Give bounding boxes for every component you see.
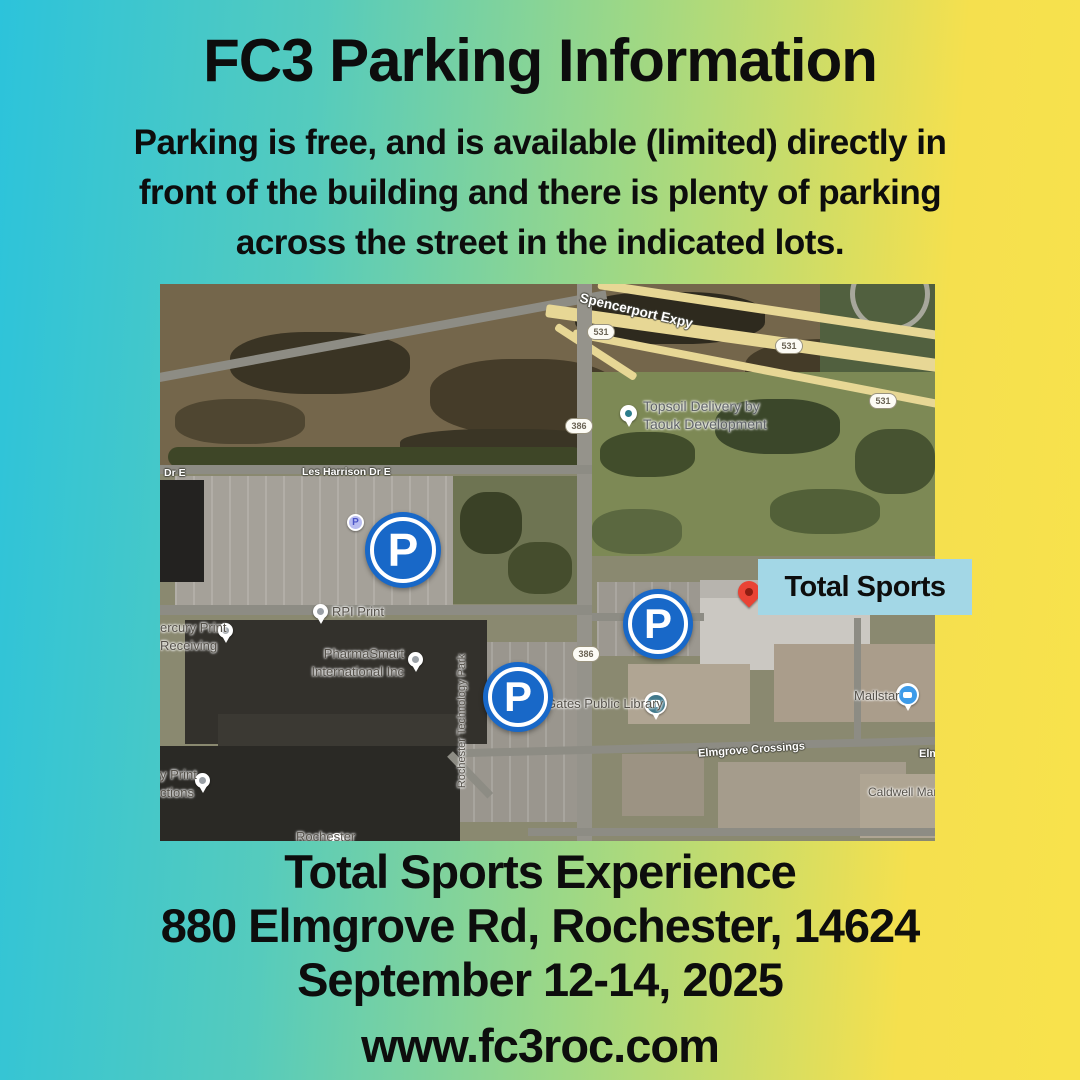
poi-label-receiving: Receiving bbox=[160, 638, 214, 653]
poi-label-topsoil-2: Taouk Development bbox=[643, 416, 767, 432]
poi-label-print-1: y Print bbox=[160, 767, 197, 782]
building-dark bbox=[160, 480, 204, 582]
street-label-rochester-technology-park: Rochester Technology Park bbox=[456, 646, 468, 796]
description-line-3: across the street in the indicated lots. bbox=[0, 218, 1080, 268]
parking-marker-northwest: P bbox=[365, 512, 441, 588]
road-bottom bbox=[528, 828, 935, 836]
poi-pin-print-solutions bbox=[195, 773, 210, 788]
route-shield-386: 386 bbox=[565, 418, 593, 434]
description-line-2: front of the building and there is plent… bbox=[0, 168, 1080, 218]
poi-label-topsoil-1: Topsoil Delivery by bbox=[643, 398, 760, 414]
tree-cluster bbox=[770, 489, 880, 534]
tree-cluster bbox=[600, 432, 695, 477]
page-title: FC3 Parking Information bbox=[0, 26, 1080, 95]
route-shield-531: 531 bbox=[775, 338, 803, 354]
tree-cluster bbox=[508, 542, 572, 594]
parking-marker-east: P bbox=[623, 589, 693, 659]
poi-label-caldwell: Caldwell Man bbox=[868, 785, 935, 799]
tree-cluster bbox=[855, 429, 935, 494]
venue-label-text: Total Sports bbox=[784, 571, 945, 604]
poi-label-mercury-print: ercury Print bbox=[160, 620, 214, 635]
route-shield-531: 531 bbox=[869, 393, 897, 409]
poi-label-pharmasmart-1: PharmaSmart bbox=[316, 646, 404, 661]
poi-pin-topsoil bbox=[620, 405, 637, 422]
poi-pin-pharmasmart bbox=[408, 652, 423, 667]
building-dark bbox=[218, 714, 463, 746]
road-elmgrove-386 bbox=[577, 284, 592, 841]
venue-label: Total Sports bbox=[758, 559, 972, 615]
route-shield-531: 531 bbox=[587, 324, 615, 340]
poi-label-print-2: ctions bbox=[160, 785, 194, 800]
description-line-1: Parking is free, and is available (limit… bbox=[0, 118, 1080, 168]
tree-row bbox=[168, 447, 583, 467]
venue-name: Total Sports Experience bbox=[0, 845, 1080, 899]
route-shield-386: 386 bbox=[572, 646, 600, 662]
building-dark bbox=[160, 746, 460, 841]
scrub-dark-patch bbox=[175, 399, 305, 444]
road-side-drive bbox=[854, 618, 861, 744]
parking-description: Parking is free, and is available (limit… bbox=[0, 118, 1080, 268]
event-website: www.fc3roc.com bbox=[0, 1019, 1080, 1073]
parking-marker-south: P bbox=[483, 662, 553, 732]
poi-label-gates-public-library: Gates Public Library bbox=[546, 696, 663, 711]
venue-address: 880 Elmgrove Rd, Rochester, 14624 bbox=[0, 899, 1080, 953]
small-parking-icon: P bbox=[347, 514, 364, 531]
poi-label-mailstar: Mailstar bbox=[854, 688, 900, 703]
poi-pin-rpi-print bbox=[313, 604, 328, 619]
poi-label-rochester: Rochester bbox=[296, 829, 355, 841]
poi-label-pharmasmart-2: International Inc bbox=[296, 664, 404, 679]
event-dates: September 12-14, 2025 bbox=[0, 953, 1080, 1007]
tree-cluster bbox=[592, 509, 682, 554]
street-label-dr-e: Dr E bbox=[164, 467, 186, 479]
tree-cluster bbox=[460, 492, 522, 554]
street-label-les-harrison: Les Harrison Dr E bbox=[302, 466, 391, 478]
street-label-elm-cut: Elm bbox=[919, 748, 935, 760]
event-details: Total Sports Experience 880 Elmgrove Rd,… bbox=[0, 845, 1080, 1073]
poi-label-rpi-print: RPI Print bbox=[332, 604, 384, 619]
building-tan bbox=[628, 664, 750, 724]
building-tan bbox=[622, 754, 704, 816]
